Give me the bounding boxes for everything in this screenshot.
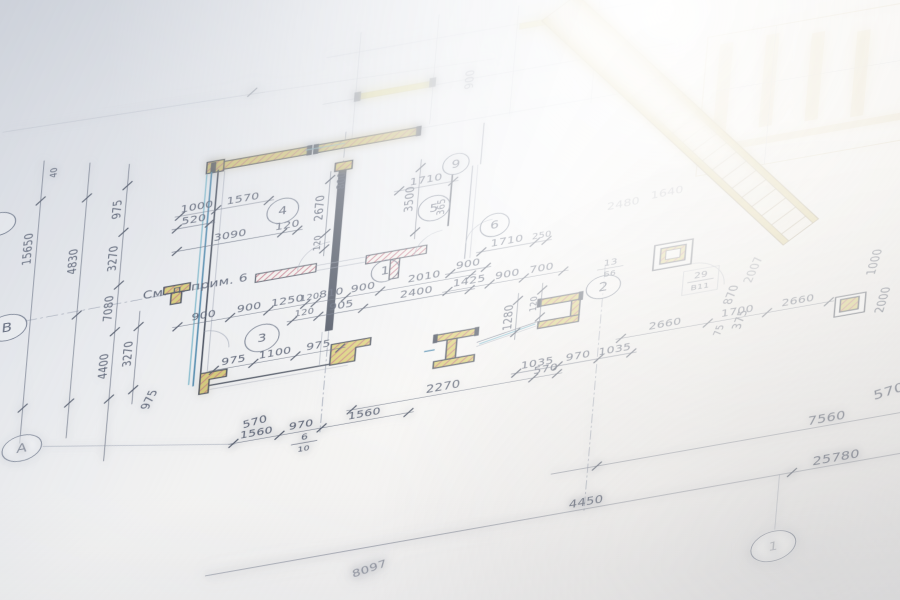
dim-label: 900: [455, 255, 481, 271]
plan-note: См. п. прим. 6: [142, 270, 248, 302]
dim-label: 700: [529, 260, 555, 276]
floor-plan-drawing: 1000157052030901201710900900125012081090…: [0, 0, 900, 600]
dim-label: 25780: [812, 447, 860, 468]
dim-tick: [787, 468, 797, 477]
dim-tick: [172, 225, 182, 234]
dim-tick: [358, 304, 368, 313]
dim-tick: [448, 177, 458, 186]
dim-label: 4830: [64, 247, 82, 276]
grid-axis-bubble: [0, 210, 17, 239]
dim-tick: [275, 431, 285, 440]
dim-label: 570: [873, 380, 900, 403]
dim-label: 120: [528, 295, 540, 312]
dim-tick: [476, 247, 486, 256]
blueprint-paper: 1000157052030901201710900900125012081090…: [0, 0, 900, 600]
dim-tick: [558, 267, 568, 276]
dim-label: 2670: [310, 194, 328, 223]
dim-label: 1560: [347, 404, 381, 422]
dim-tick: [229, 439, 239, 448]
room-number: 5: [429, 201, 439, 216]
dim-label: 2010: [407, 267, 441, 285]
dim-label: 1710: [490, 231, 524, 249]
grid-axis-label: 1: [768, 539, 779, 555]
dim-label: 1425: [452, 272, 486, 290]
corner-column: [199, 369, 227, 394]
room-number: 4: [278, 203, 288, 218]
dim-label: 2400: [399, 283, 433, 301]
room-number: 3: [257, 330, 267, 345]
dim-label: 7080: [99, 294, 117, 323]
dim-tick: [519, 274, 529, 283]
dim-label: 2270: [425, 378, 461, 396]
room-number: 1: [380, 263, 390, 278]
dimension-line: [66, 163, 90, 439]
hatched-wall: [255, 264, 316, 283]
dim-label: 970: [288, 416, 314, 432]
dim-label: 4450: [568, 493, 604, 511]
dim-label: 3500: [400, 185, 418, 214]
dim-label: 900: [236, 299, 262, 315]
dim-label: 2000: [871, 286, 894, 313]
dim-tick: [762, 308, 772, 317]
dim-tick: [375, 287, 385, 296]
dim-label: 2660: [648, 315, 682, 333]
dim-label: 2660: [781, 291, 815, 309]
dim-tick: [703, 319, 713, 328]
dim-label: 8097: [351, 557, 387, 580]
dim-label: 975: [108, 198, 125, 220]
dim-label: 975: [137, 389, 161, 410]
dim-label: 3090: [213, 226, 247, 244]
dim-tick: [824, 297, 834, 306]
dim-tick: [404, 408, 414, 417]
dim-label: 975: [306, 337, 332, 353]
dim-tick: [313, 312, 323, 321]
room-number: 9: [451, 156, 461, 171]
dim-tick: [264, 196, 274, 205]
dim-tick: [291, 352, 301, 361]
dim-label: 4400: [94, 352, 112, 381]
fraction-top: 6: [301, 432, 309, 443]
dim-tick: [173, 322, 183, 331]
dim-label: 120: [312, 234, 324, 251]
far-wall-insulation: [358, 81, 432, 100]
dim-tick: [317, 423, 327, 432]
dimension-line: [616, 301, 834, 340]
dim-label: 1280: [499, 303, 517, 332]
exterior-wall-top: [214, 147, 308, 171]
grid-axis-label: А: [16, 441, 28, 457]
dimension-line: [20, 161, 45, 444]
dim-tick: [248, 359, 258, 368]
dim-label: 975: [221, 352, 247, 368]
dim-label: 900: [350, 279, 376, 295]
dim-tick: [445, 269, 455, 278]
dim-label: 1570: [226, 189, 260, 207]
dim-tick: [592, 462, 602, 471]
dim-label: 75: [711, 324, 727, 336]
blueprint-photo: 1000157052030901201710900900125012081090…: [0, 0, 900, 600]
dim-label: 900: [494, 266, 520, 282]
dim-label: 970: [565, 347, 591, 363]
dim-tick: [443, 287, 453, 296]
dim-tick: [225, 313, 235, 322]
dim-label: 15650: [19, 232, 37, 267]
dim-label: 7560: [807, 409, 846, 429]
grid-axis-label: 2: [598, 280, 609, 296]
dimension-line: [205, 416, 900, 576]
dim-label: 1000: [863, 249, 886, 276]
fraction-bottom: 10: [297, 443, 310, 454]
blueprint-scene: 1000157052030901201710900900125012081090…: [0, 0, 900, 600]
dim-label: 3270: [104, 244, 122, 273]
dim-tick: [511, 369, 521, 378]
dim-tick: [481, 263, 491, 272]
dim-label: 2007: [740, 256, 767, 284]
dim-label: 870: [719, 285, 742, 305]
dim-label: 1640: [650, 183, 683, 202]
dim-label: 900: [461, 68, 478, 90]
dim-label: 2480: [607, 194, 640, 213]
dim-tick: [485, 280, 495, 289]
dim-label: 3270: [119, 340, 137, 369]
grid-axis-label: В: [1, 321, 13, 337]
dim-label: 1100: [258, 344, 292, 362]
dim-label: 800: [336, 171, 350, 191]
dim-label: 1710: [409, 170, 443, 188]
dim-label: 810: [319, 284, 345, 300]
dim-label: 1035: [598, 340, 632, 358]
dim-label: 40: [49, 166, 61, 178]
dim-tick: [172, 247, 182, 256]
room-number: 6: [490, 217, 500, 232]
